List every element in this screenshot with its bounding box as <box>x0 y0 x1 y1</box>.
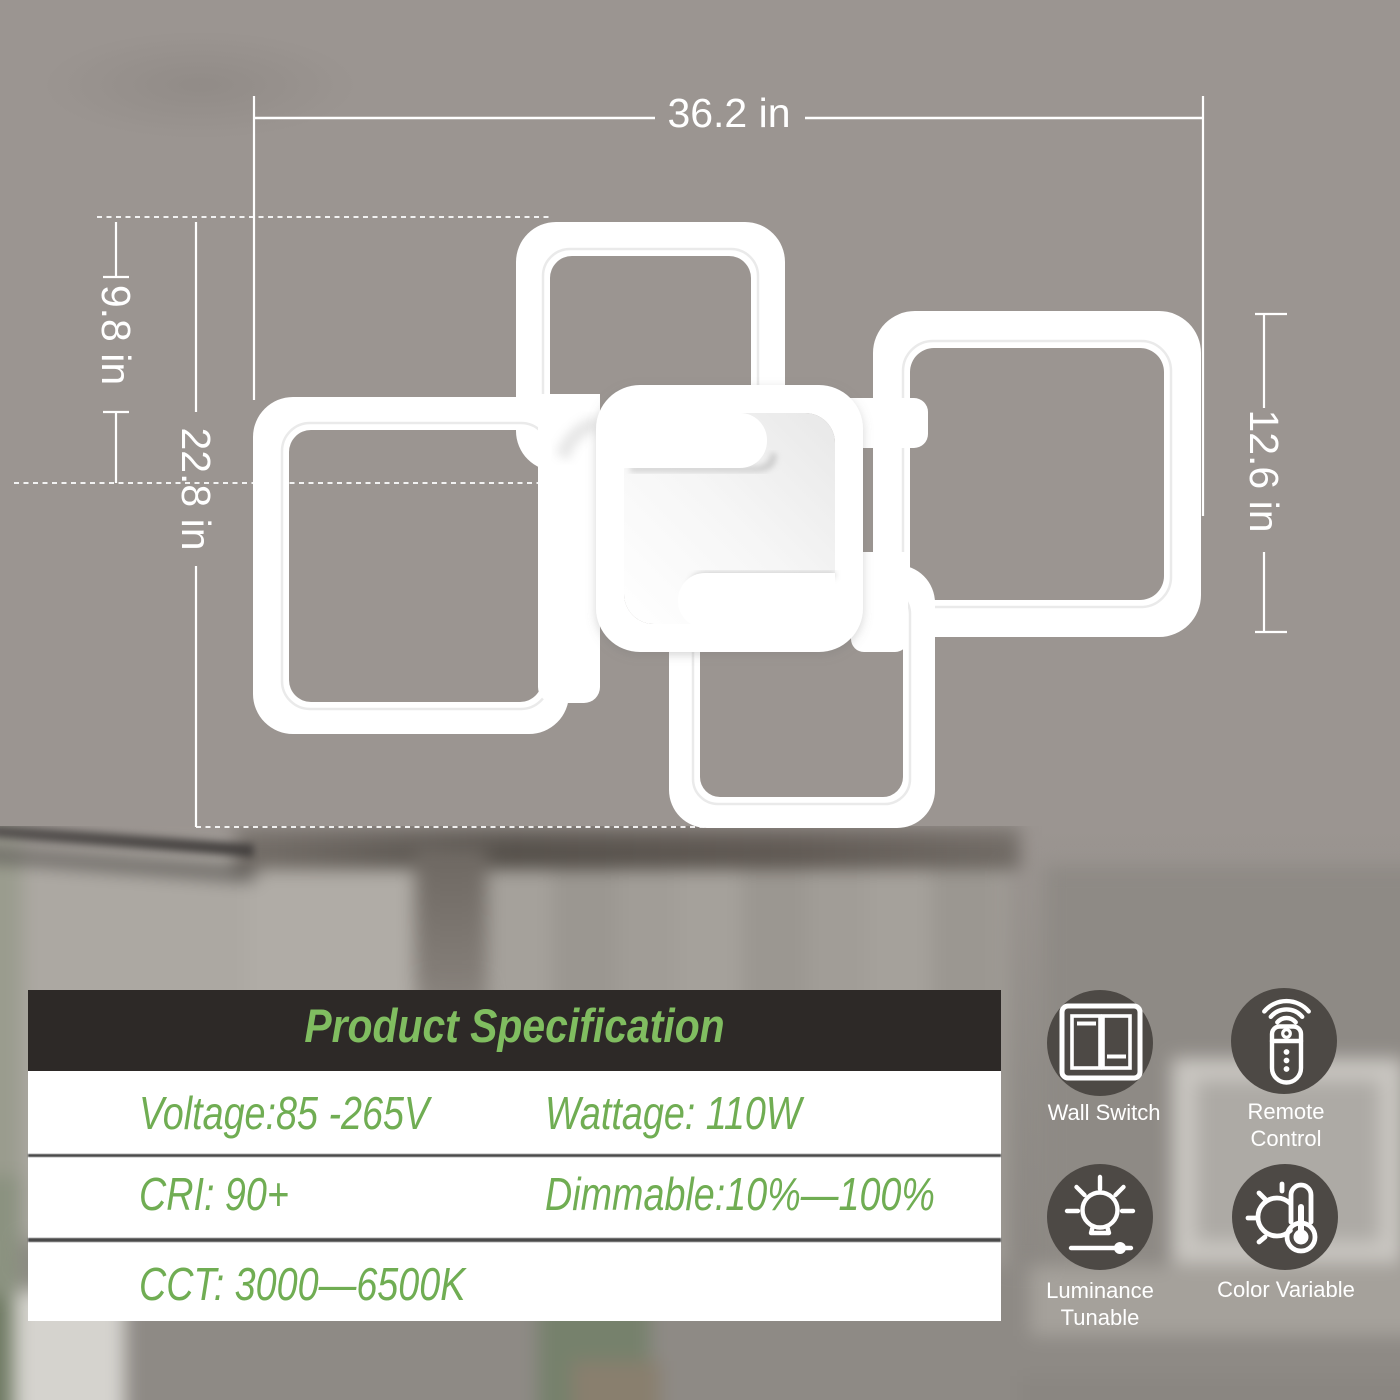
svg-text:36.2 in: 36.2 in <box>667 90 790 136</box>
svg-text:22.8 in: 22.8 in <box>173 427 219 550</box>
svg-text:9.8 in: 9.8 in <box>93 285 139 385</box>
svg-text:12.6 in: 12.6 in <box>1241 409 1287 532</box>
